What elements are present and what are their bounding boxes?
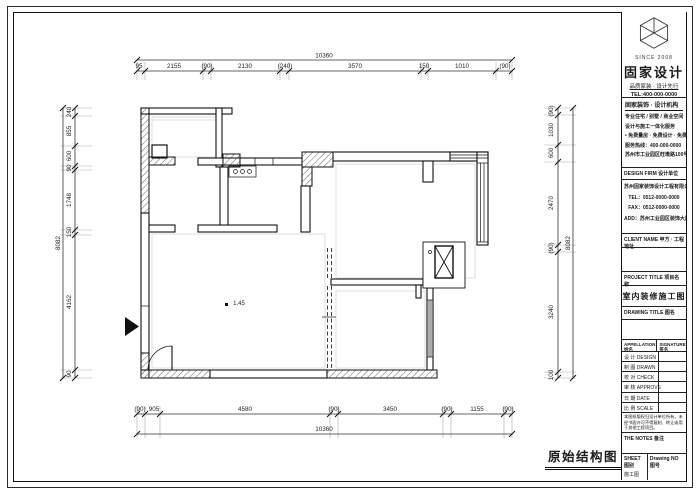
sign-row-label: 审 核 APPROVE xyxy=(622,382,659,391)
level-marker-value: 1.45 xyxy=(233,301,245,307)
dim-label: (240) xyxy=(278,63,293,70)
sign-row-label: 制 图 DRAWN xyxy=(622,362,659,371)
dim-label: 600 xyxy=(548,147,555,158)
dimension-ticks xyxy=(60,57,576,437)
dim-label: 4162 xyxy=(66,295,73,310)
sign-row-value xyxy=(659,362,686,371)
title-block: SINCE 2008 固家设计 品质家装 · 设计先行 TEL:400-000-… xyxy=(621,12,686,480)
sign-row-value xyxy=(659,393,686,402)
firm-info-line: 苏州固家装饰设计工程有限公司 xyxy=(624,182,684,193)
dim-label: 150 xyxy=(66,226,73,237)
remarks-box: THE NOTES 备注 xyxy=(622,433,686,454)
about-line: • 免费量房 · 免费设计 · 免费报价 xyxy=(625,132,683,142)
project-title-header: PROJECT TITLE 项目名称 xyxy=(622,272,686,286)
sheet-type-value: 施工图 xyxy=(624,471,645,478)
dim-label: 855 xyxy=(66,125,73,136)
dim-label: 8082 xyxy=(55,236,62,251)
sign-table-row: 审 核 APPROVE xyxy=(622,382,686,392)
dim-label: 2470 xyxy=(548,196,555,211)
firm-info-line: ADD：苏州工业园区装饰大厦 xyxy=(624,214,684,225)
dim-label: 90 xyxy=(66,164,73,172)
hatched-walls xyxy=(141,108,437,378)
sign-row-label: 设 计 DESIGN xyxy=(622,352,659,361)
dim-label: (90) xyxy=(134,406,145,413)
entry-arrow-icon xyxy=(125,317,139,336)
drawing-number-label: Drawing NO 图号 xyxy=(650,456,684,469)
drawing-title-header: DRAWING TITLE 图名 xyxy=(622,307,686,319)
about-line: 苏州市工业园区旺墩路100号 xyxy=(625,151,683,161)
sign-row-value xyxy=(659,403,686,412)
sign-row-label: 校 对 CHECK xyxy=(622,372,659,381)
copyright-note: 本图纸版权归设计单位所有，未经书面许可不得复制、转让或用于其他工程项目。 xyxy=(622,413,686,433)
firm-name: 固家设计 xyxy=(622,62,686,81)
design-firm-info: 苏州固家装饰设计工程有限公司 TEL：0512-0000-0000 FAX：05… xyxy=(622,180,686,234)
dim-label: 2155 xyxy=(167,63,182,70)
sign-col-appellation: APPELLATION 姓名 xyxy=(622,340,657,351)
dim-label: (90) xyxy=(548,105,555,116)
sign-row-value xyxy=(659,372,686,381)
dim-label: 1030 xyxy=(548,123,555,138)
dim-label: (90) xyxy=(548,242,555,253)
dim-label: 100 xyxy=(548,369,555,380)
sign-table-row: 制 图 DRAWN xyxy=(622,362,686,372)
project-title-value: 室内装修施工图 xyxy=(622,286,686,307)
dim-label: 90 xyxy=(66,370,73,378)
firm-info-line: TEL：0512-0000-0000 xyxy=(624,193,684,204)
dashed-beam-lines xyxy=(328,248,332,368)
dim-label: (90) xyxy=(328,406,339,413)
dim-label: 1155 xyxy=(470,406,484,413)
client-value-box xyxy=(622,248,686,272)
dim-label: 1010 xyxy=(455,63,470,70)
dim-label: 10360 xyxy=(315,426,333,433)
drawing-title-label: 原始结构图 xyxy=(545,446,621,470)
sign-table-row: 设 计 DESIGN xyxy=(622,352,686,362)
sign-row-label: 比 例 SCALE xyxy=(622,403,659,412)
sign-col-signature: SIGNATURE 签名 xyxy=(657,340,686,351)
dim-label: 905 xyxy=(149,406,160,413)
about-line: 服务热线：400-000-0000 xyxy=(625,142,683,152)
sign-table-row: 比 例 SCALE xyxy=(622,403,686,413)
design-firm-header: DESIGN FIRM 设计单位 xyxy=(622,168,686,180)
title-block-footer: SHEET 图别 施工图 Drawing NO 图号 xyxy=(622,454,686,480)
firm-logo-block: SINCE 2008 固家设计 品质家装 · 设计先行 TEL:400-000-… xyxy=(622,12,686,98)
firm-about-block: 固家装饰 · 设计机构 专业住宅 / 别墅 / 商业空间 设计与施工一体化服务 … xyxy=(622,98,686,168)
sign-row-value xyxy=(659,382,686,391)
sheet-type-cell: SHEET 图别 施工图 xyxy=(622,454,648,480)
client-header: CLIENT NAME 甲方 · 工程地址 xyxy=(622,234,686,248)
sheet-type-label: SHEET 图别 xyxy=(624,456,645,469)
dim-label: (90) xyxy=(201,63,212,70)
dim-label: 4580 xyxy=(238,406,253,413)
dim-label: 150 xyxy=(419,63,430,70)
level-marker: 1.45 xyxy=(225,301,245,307)
drawing-number-cell: Drawing NO 图号 xyxy=(648,454,686,480)
dim-label: 95 xyxy=(135,63,143,70)
dim-label: 2130 xyxy=(238,63,253,70)
dim-label: 1748 xyxy=(66,193,73,208)
sign-table-row: 校 对 CHECK xyxy=(622,372,686,382)
dim-label: (90) xyxy=(502,406,513,413)
about-line: 专业住宅 / 别墅 / 商业空间 xyxy=(625,113,683,123)
sign-table-header: APPELLATION 姓名 SIGNATURE 签名 xyxy=(622,340,686,352)
dim-label: 8082 xyxy=(565,236,572,251)
sign-table-row: 日 期 DATE xyxy=(622,393,686,403)
cube-logo-icon xyxy=(637,16,671,50)
about-line: 设计与施工一体化服务 xyxy=(625,123,683,133)
firm-info-line: FAX：0512-0000-0000 xyxy=(624,203,684,214)
stove-symbol xyxy=(229,166,256,177)
logo-since-text: SINCE 2008 xyxy=(622,55,686,61)
dim-label: (90) xyxy=(441,406,452,413)
sign-row-label: 日 期 DATE xyxy=(622,393,659,402)
dim-label: 10360 xyxy=(315,53,333,60)
dim-label: 3450 xyxy=(383,406,398,413)
firm-tagline: 品质家装 · 设计先行 xyxy=(622,82,686,90)
dim-label: (90) xyxy=(499,63,510,70)
dim-label: 3570 xyxy=(348,63,363,70)
flue-shaft-symbol xyxy=(423,242,465,288)
about-header: 固家装饰 · 设计机构 xyxy=(625,100,683,111)
floor-plan: 10360 95 2155 (90) 2130 (240) 3570 150 1… xyxy=(0,0,620,494)
dim-label: 600 xyxy=(66,150,73,161)
dim-label: 3240 xyxy=(548,305,555,320)
drawing-title-value-box xyxy=(622,320,686,340)
sign-row-value xyxy=(659,352,686,361)
dim-label: 240 xyxy=(66,106,73,117)
extension-lines xyxy=(60,62,576,438)
